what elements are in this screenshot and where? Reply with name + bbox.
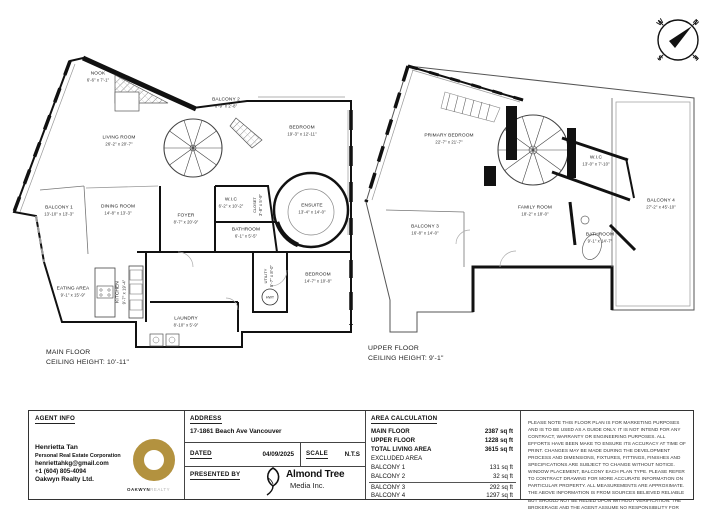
agent-email: henriettahkg@gmail.com (35, 460, 109, 467)
address-section: ADDRESS 17-1861 Beach Ave Vancouver DATE… (184, 411, 365, 499)
presented-by-label: PRESENTED BY (190, 471, 240, 480)
upper-floor-title: UPPER FLOOR (368, 345, 419, 352)
almond-tree-logo-icon (260, 466, 284, 496)
agent-info-section: AGENT INFO Henrietta Tan Personal Real E… (29, 411, 184, 499)
oakwyn-logo-wordmark: OAKWYNREALTY (127, 487, 170, 492)
area-row-balcony-2: BALCONY 232 sq ft (371, 473, 513, 482)
oakwyn-logo-icon (133, 439, 175, 481)
area-row-balcony-1: BALCONY 1131 sq ft (371, 464, 513, 473)
disclaimer-section: PLEASE NOTE THIS FLOOR PLAN IS FOR MARKE… (520, 411, 693, 499)
area-calculation-header: AREA CALCULATION (371, 415, 437, 424)
room-label-bathroom-main: BATHROOM6'-1" x 5'-5" (232, 227, 260, 238)
divider (369, 482, 516, 483)
dated-label: DATED (190, 450, 212, 459)
room-label-dining-room: DINING ROOM14'-8" x 13'-3" (101, 204, 135, 215)
room-label-balcony-3: BALCONY 316'-8" x 14'-0" (411, 224, 439, 235)
oakwyn-wordmark-primary: OAKWYN (127, 487, 150, 492)
agent-company: Oakwyn Realty Ltd. (35, 476, 94, 483)
almond-tree-sub: Media Inc. (290, 481, 325, 490)
room-label-primary-bedroom: PRIMARY BEDROOM22'-7" x 21'-7" (424, 133, 473, 144)
info-table: AGENT INFO Henrietta Tan Personal Real E… (28, 410, 694, 500)
room-label-bedroom-2: BEDROOM14'-7" x 10'-8" (304, 272, 331, 283)
area-row-total-living: TOTAL LIVING AREA3615 sq ft (371, 446, 513, 455)
divider (300, 442, 301, 466)
room-label-balcony-4: BALCONY 427'-2" x 45'-10" (646, 198, 676, 209)
agent-phone: +1 (604) 805-4094 (35, 468, 86, 475)
address-header: ADDRESS (190, 415, 222, 424)
agent-title: Personal Real Estate Corporation (35, 453, 121, 459)
divider (184, 442, 365, 443)
disclaimer-text: PLEASE NOTE THIS FLOOR PLAN IS FOR MARKE… (528, 419, 686, 509)
main-floor-ceiling: CEILING HEIGHT: 10'-11" (46, 359, 129, 366)
area-row-excluded: EXCLUDED AREA (371, 455, 513, 464)
room-label-bathroom-upper: BATHROOM9'-1" x 14'-7" (586, 232, 614, 243)
room-label-eating-area: EATING AREA9'-1" x 15'-9" (57, 286, 90, 297)
room-label-wic-main: W.I.C6'-2" x 10'-2" (219, 197, 244, 208)
hwt-label: HWT (266, 296, 275, 300)
almond-tree-name: Almond Tree (286, 469, 344, 480)
area-row-main-floor: MAIN FLOOR2387 sq ft (371, 428, 513, 437)
room-label-ensuite: ENSUITE13'-4" x 14'-0" (298, 203, 325, 214)
area-calculation-section: AREA CALCULATION MAIN FLOOR2387 sq ft UP… (365, 411, 520, 499)
room-label-living-room: LIVING ROOM26'-2" x 20'-7" (102, 135, 135, 146)
room-label-nook: NOOK6'-6" x 7'-1" (87, 71, 109, 82)
room-label-family-room: FAMILY ROOM18'-2" x 18'-0" (518, 205, 552, 216)
room-label-laundry: LAUNDRY8'-10" x 5'-9" (174, 316, 199, 327)
room-label-utility: UTILITY5'-7" x 8'-0" (264, 265, 274, 287)
room-label-bedroom-1: BEDROOM19'-3" x 12'-11" (287, 125, 316, 136)
compass-rose-icon: N E S W (656, 18, 700, 62)
room-label-kitchen: KITCHEN9'-7" x 19'-4" (115, 280, 126, 305)
upper-floor-ceiling: CEILING HEIGHT: 9'-1" (368, 355, 444, 362)
room-label-wic-upper: W.I.C13'-0" x 7'-10" (582, 155, 609, 166)
address-value: 17-1861 Beach Ave Vancouver (190, 428, 282, 435)
scale-value: N.T.S (324, 451, 360, 458)
agent-name: Henrietta Tan (35, 444, 78, 451)
room-label-foyer: FOYER8'-7" x 20'-9" (174, 213, 199, 224)
room-label-balcony-2: BALCONY 28'-9" x 2'-8" (212, 97, 240, 108)
room-label-closet: CLOSET3'-8" x 5'-9" (253, 194, 263, 216)
area-row-balcony-4: BALCONY 41297 sq ft (371, 492, 513, 501)
floor-plan-sheet: HWT (0, 0, 720, 509)
room-label-balcony-1: BALCONY 113'-10" x 13'-3" (44, 205, 74, 216)
agent-info-header: AGENT INFO (35, 415, 75, 424)
oakwyn-wordmark-secondary: REALTY (150, 487, 170, 492)
area-row-upper-floor: UPPER FLOOR1228 sq ft (371, 437, 513, 446)
main-floor-title: MAIN FLOOR (46, 349, 90, 356)
dated-value: 04/09/2025 (224, 451, 294, 458)
upper-floor-plan (366, 66, 694, 332)
